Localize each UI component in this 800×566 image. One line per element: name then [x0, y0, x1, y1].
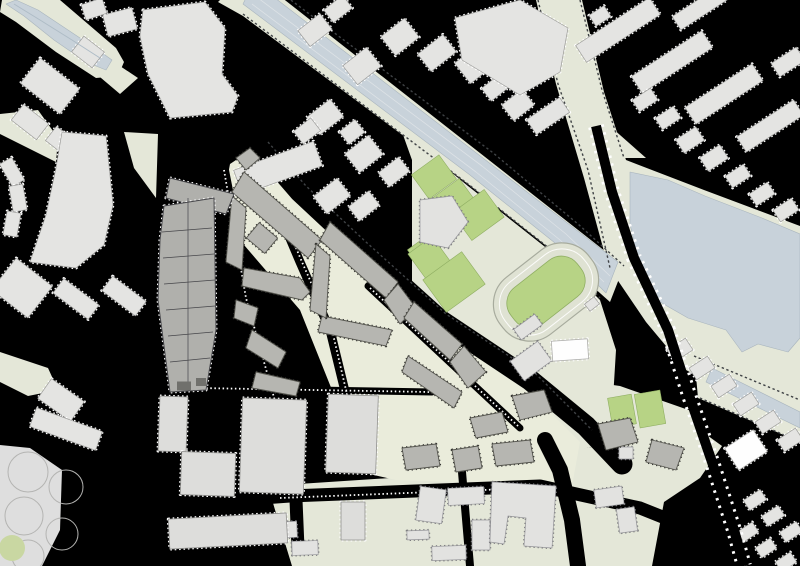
buildings-on-green-shape — [619, 447, 633, 459]
proposed-site-buildings-shape — [492, 440, 534, 466]
large-light-blocks-shape — [341, 502, 365, 540]
large-light-blocks-shape — [180, 452, 235, 497]
large-light-blocks-shape — [239, 398, 306, 494]
buildings-on-green-shape — [448, 487, 485, 506]
large-light-blocks-shape — [158, 396, 188, 452]
dark-slab-building-shape — [158, 198, 216, 392]
large-light-blocks-shape — [168, 513, 287, 549]
buildings-on-green-shape — [432, 545, 466, 560]
sports-pitches-shape — [634, 390, 666, 428]
buildings-on-green-shape — [594, 486, 624, 508]
slab-dark-units-shape — [177, 382, 191, 391]
buildings-on-green-shape — [616, 507, 637, 533]
proposed-site-buildings-shape — [452, 446, 482, 472]
site-plan-canvas — [0, 0, 800, 566]
proposed-site-buildings-shape — [402, 444, 440, 470]
masterplan-map — [0, 0, 800, 566]
large-light-blocks-shape — [326, 394, 379, 474]
buildings-on-green-shape — [472, 520, 490, 550]
buildings-on-green-shape — [416, 486, 446, 523]
buildings-on-green-shape — [407, 530, 429, 540]
round-garden-green — [0, 535, 25, 561]
slab-dark-units-shape — [196, 378, 206, 386]
buildings-on-green-shape — [292, 541, 318, 556]
round-garden-green-shape — [0, 535, 25, 561]
white-buildings-shape — [551, 339, 588, 361]
